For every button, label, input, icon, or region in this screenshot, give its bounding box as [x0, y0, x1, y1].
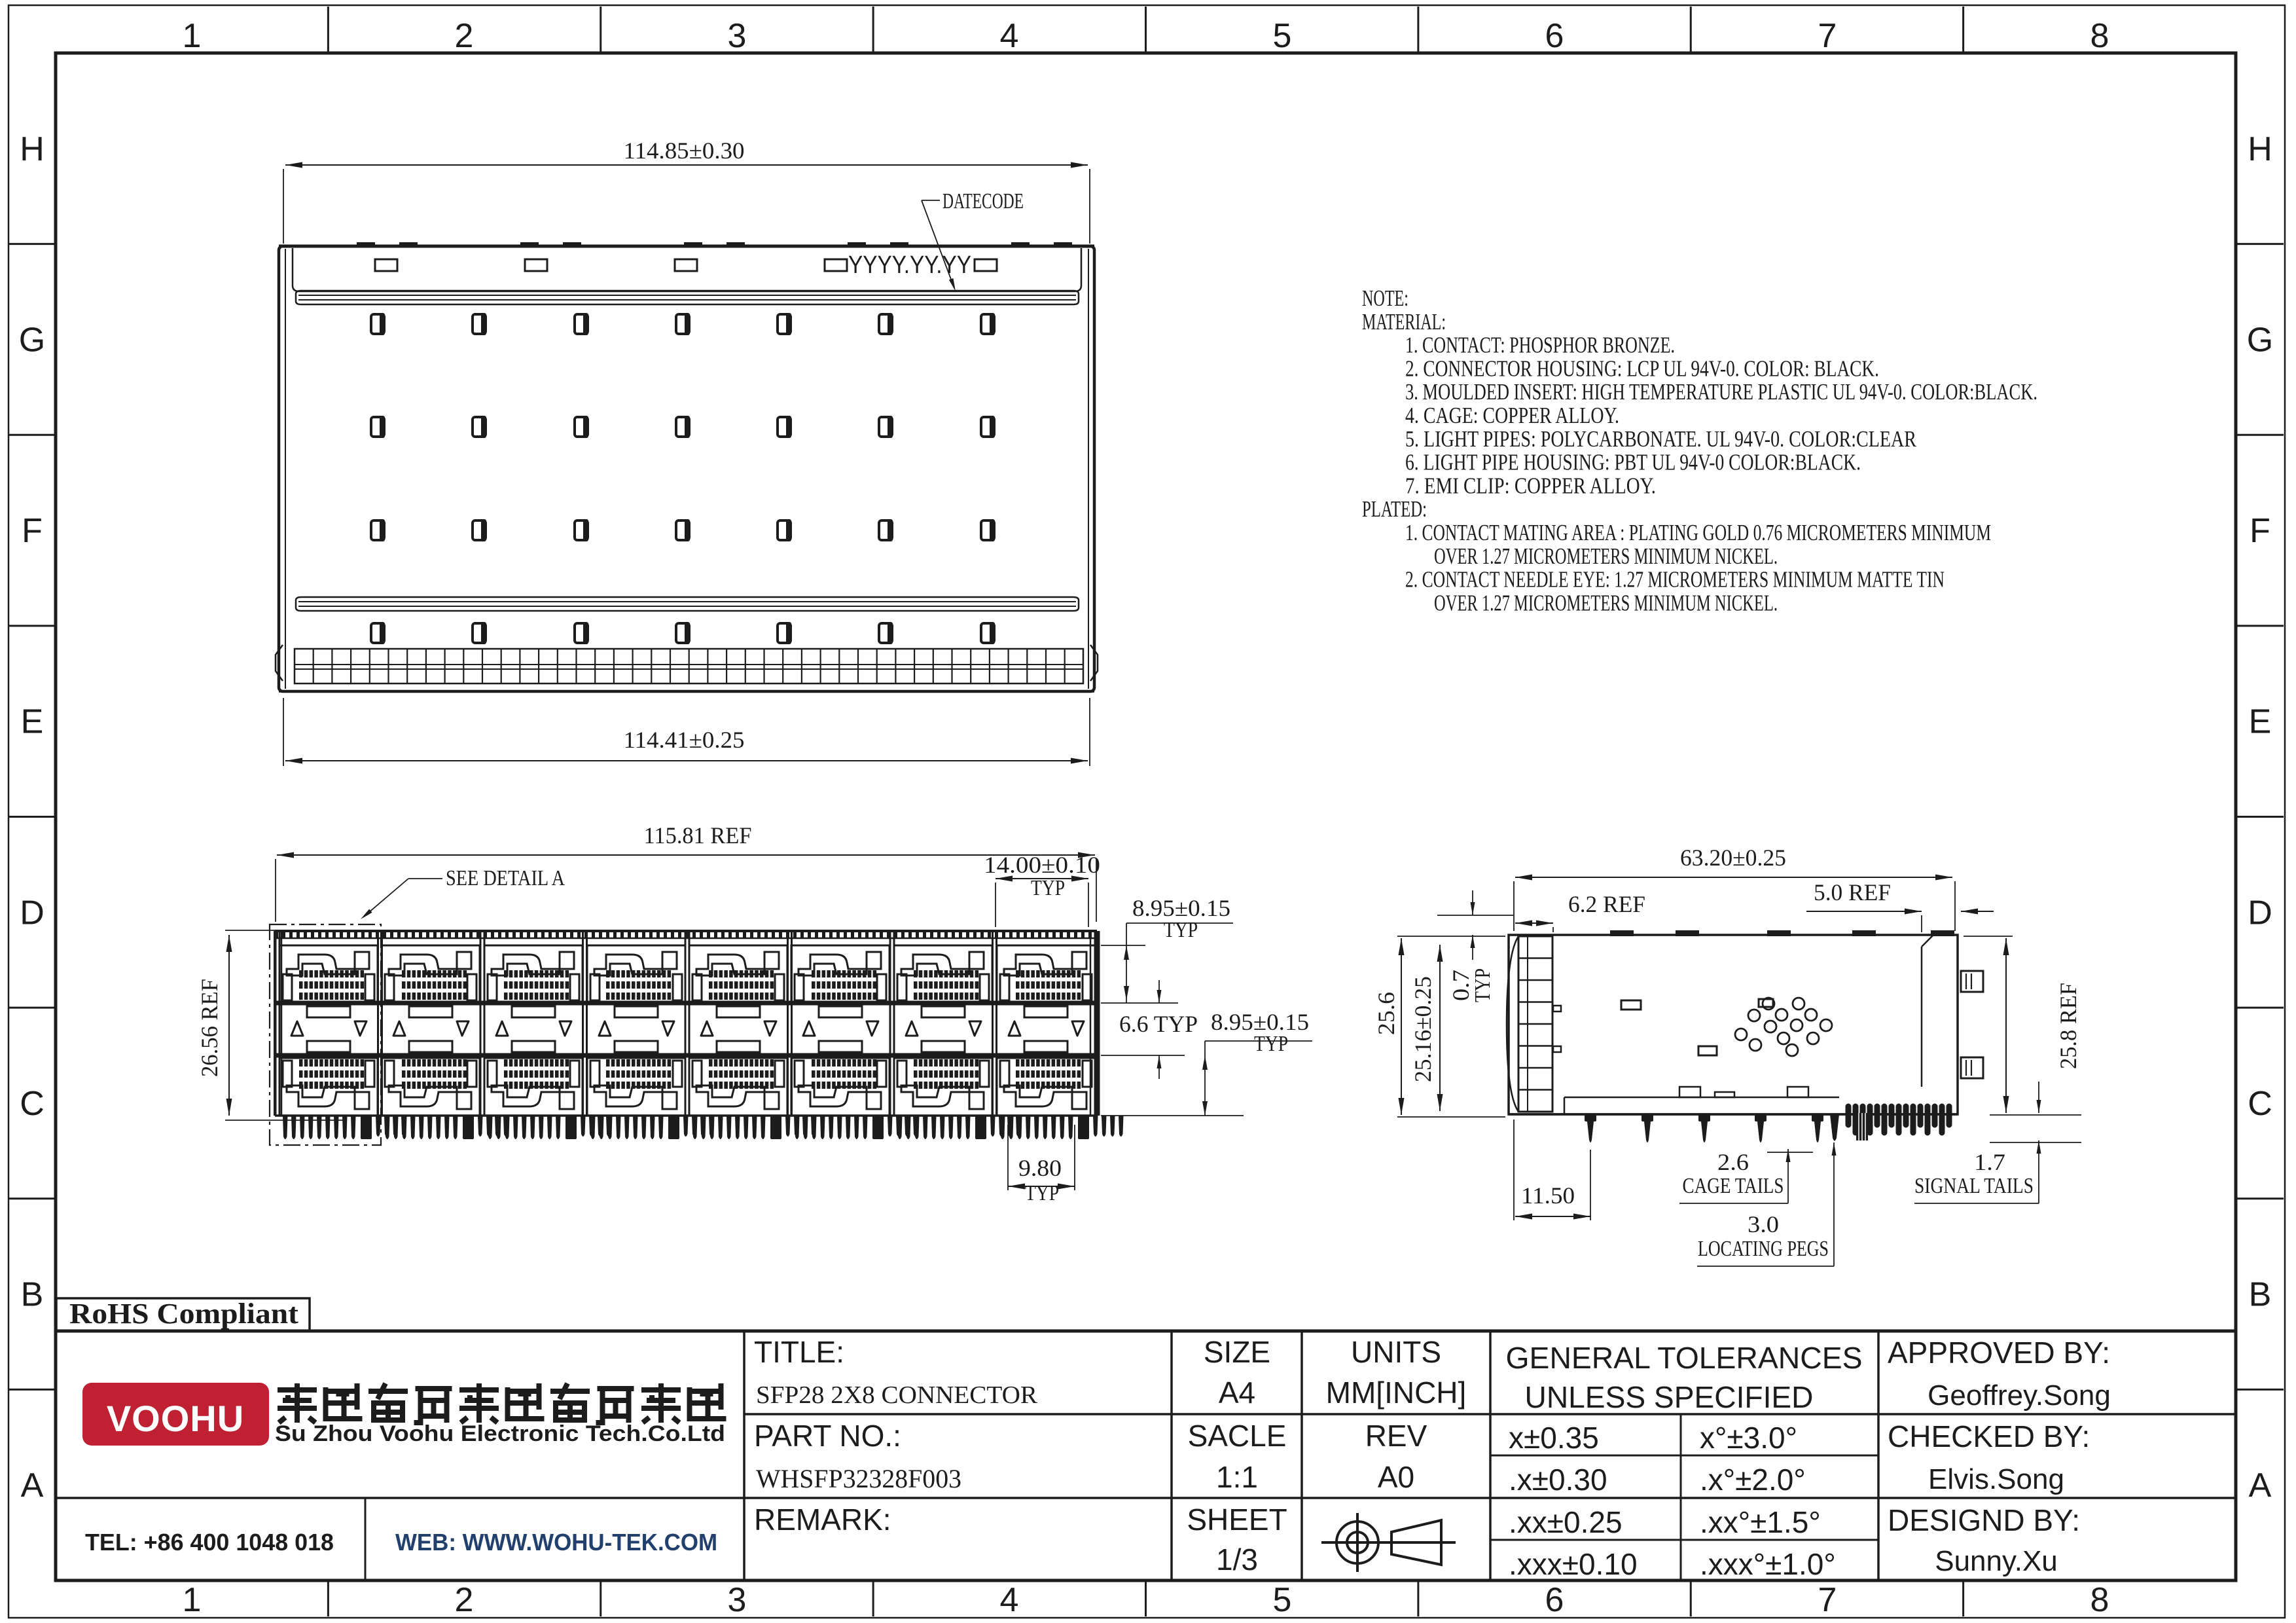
- svg-text:TEL: +86 400 1048 018: TEL: +86 400 1048 018: [85, 1529, 334, 1556]
- svg-text:6. LIGHT PIPE HOUSING: PBT UL: 6. LIGHT PIPE HOUSING: PBT UL 94V-0 COLO…: [1405, 450, 1861, 475]
- svg-text:0.7: 0.7: [1448, 970, 1474, 1001]
- svg-text:Elvis.Song: Elvis.Song: [1928, 1463, 2064, 1495]
- svg-text:SFP28 2X8 CONNECTOR: SFP28 2X8 CONNECTOR: [756, 1381, 1038, 1409]
- svg-text:CHECKED BY:: CHECKED BY:: [1888, 1419, 2090, 1453]
- svg-text:TYP: TYP: [1254, 1032, 1288, 1056]
- svg-text:VOOHU: VOOHU: [107, 1398, 244, 1439]
- svg-text:RoHS Compliant: RoHS Compliant: [69, 1298, 298, 1330]
- svg-text:2: 2: [455, 1581, 474, 1619]
- svg-text:D: D: [2248, 894, 2272, 932]
- svg-text:11.50: 11.50: [1521, 1182, 1575, 1209]
- svg-text:6: 6: [1545, 1581, 1564, 1619]
- svg-text:26.56 REF: 26.56 REF: [196, 979, 223, 1077]
- svg-text:25.16±0.25: 25.16±0.25: [1410, 976, 1436, 1082]
- svg-text:SIGNAL TAILS: SIGNAL TAILS: [1914, 1174, 2034, 1198]
- svg-text:TYP: TYP: [1471, 968, 1495, 1002]
- svg-text:TYP: TYP: [1164, 918, 1198, 942]
- svg-text:GENERAL TOLERANCES: GENERAL TOLERANCES: [1506, 1341, 1863, 1375]
- svg-text:3: 3: [728, 1581, 747, 1619]
- svg-text:7: 7: [1818, 1581, 1837, 1619]
- svg-text:114.85±0.30: 114.85±0.30: [624, 137, 745, 164]
- svg-text:G: G: [19, 321, 45, 359]
- svg-text:Geoffrey.Song: Geoffrey.Song: [1928, 1379, 2111, 1412]
- svg-text:6: 6: [1545, 17, 1564, 55]
- svg-text:4. CAGE: COPPER ALLOY.: 4. CAGE: COPPER ALLOY.: [1405, 403, 1619, 428]
- svg-text:C: C: [2248, 1085, 2272, 1123]
- svg-text:1:1: 1:1: [1216, 1460, 1258, 1494]
- svg-text:UNLESS SPECIFIED: UNLESS SPECIFIED: [1525, 1380, 1814, 1414]
- svg-text:8.95±0.15: 8.95±0.15: [1132, 895, 1230, 921]
- svg-text:WEB: WWW.WOHU-TEK.COM: WEB: WWW.WOHU-TEK.COM: [395, 1529, 717, 1556]
- svg-text:PLATED:: PLATED:: [1362, 496, 1427, 522]
- svg-text:C: C: [20, 1085, 45, 1123]
- svg-text:63.20±0.25: 63.20±0.25: [1680, 845, 1786, 871]
- svg-text:SACLE: SACLE: [1188, 1419, 1287, 1453]
- svg-text:6.6 TYP: 6.6 TYP: [1119, 1011, 1198, 1037]
- svg-text:DATECODE: DATECODE: [942, 189, 1024, 213]
- svg-text:OVER 1.27 MICROMETERS MINIMUM: OVER 1.27 MICROMETERS MINIMUM NICKEL.: [1434, 590, 1778, 615]
- svg-text:1.7: 1.7: [1974, 1149, 2005, 1175]
- svg-text:7. EMI CLIP: COPPER ALLOY.: 7. EMI CLIP: COPPER ALLOY.: [1405, 473, 1656, 498]
- svg-text:2. CONNECTOR HOUSING: LCP UL: 2. CONNECTOR HOUSING: LCP UL 94V-0. COLO…: [1405, 356, 1879, 381]
- svg-text:9.80: 9.80: [1018, 1155, 1062, 1181]
- svg-text:MM[INCH]: MM[INCH]: [1326, 1376, 1467, 1410]
- svg-text:.x°±2.0°: .x°±2.0°: [1700, 1463, 1806, 1497]
- svg-text:MATERIAL:: MATERIAL:: [1362, 309, 1446, 335]
- svg-text:4: 4: [1000, 17, 1019, 55]
- svg-text:.xxx±0.10: .xxx±0.10: [1509, 1547, 1638, 1581]
- svg-text:LOCATING PEGS: LOCATING PEGS: [1698, 1237, 1829, 1261]
- svg-text:Su Zhou Voohu Electronic Tech.: Su Zhou Voohu Electronic Tech.Co.Ltd: [275, 1421, 725, 1446]
- svg-text:CAGE TAILS: CAGE TAILS: [1683, 1174, 1784, 1198]
- svg-text:SIZE: SIZE: [1204, 1335, 1270, 1369]
- svg-text:WHSFP32328F003: WHSFP32328F003: [756, 1464, 961, 1493]
- svg-text:6.2 REF: 6.2 REF: [1568, 891, 1645, 917]
- svg-text:5.0 REF: 5.0 REF: [1814, 879, 1891, 905]
- svg-text:4: 4: [1000, 1581, 1019, 1619]
- svg-text:8: 8: [2090, 1581, 2109, 1619]
- svg-text:Sunny.Xu: Sunny.Xu: [1935, 1545, 2058, 1577]
- svg-text:TYP: TYP: [1031, 876, 1065, 900]
- svg-text:REV: REV: [1365, 1419, 1427, 1453]
- svg-text:1/3: 1/3: [1216, 1542, 1258, 1577]
- svg-text:A: A: [2249, 1467, 2272, 1504]
- svg-text:D: D: [20, 894, 45, 932]
- svg-text:A: A: [21, 1467, 44, 1504]
- svg-text:1: 1: [183, 1581, 202, 1619]
- svg-text:1. CONTACT MATING AREA : PLAT: 1. CONTACT MATING AREA : PLATING GOLD 0.…: [1405, 520, 1991, 545]
- svg-text:F: F: [2250, 512, 2270, 550]
- svg-text:x±0.35: x±0.35: [1509, 1421, 1599, 1455]
- svg-text:B: B: [21, 1276, 44, 1314]
- svg-text:.x±0.30: .x±0.30: [1509, 1463, 1607, 1497]
- svg-text:B: B: [2249, 1276, 2272, 1314]
- svg-text:2: 2: [455, 17, 474, 55]
- svg-text:.xx±0.25: .xx±0.25: [1509, 1505, 1623, 1539]
- svg-text:1. CONTACT: PHOSPHOR BRONZE.: 1. CONTACT: PHOSPHOR BRONZE.: [1405, 333, 1675, 358]
- svg-text:F: F: [22, 512, 43, 550]
- svg-text:14.00±0.10: 14.00±0.10: [984, 852, 1100, 878]
- svg-text:E: E: [21, 703, 44, 741]
- svg-text:E: E: [2249, 703, 2272, 741]
- svg-text:REMARK:: REMARK:: [754, 1503, 891, 1537]
- svg-text:115.81 REF: 115.81 REF: [644, 822, 752, 848]
- svg-text:5. LIGHT PIPES: POLYCARBONATE: 5. LIGHT PIPES: POLYCARBONATE. UL 94V-0.…: [1405, 426, 1917, 452]
- svg-text:UNITS: UNITS: [1351, 1335, 1441, 1369]
- svg-text:SHEET: SHEET: [1187, 1503, 1287, 1537]
- svg-text:OVER 1.27 MICROMETERS MINIMUM: OVER 1.27 MICROMETERS MINIMUM NICKEL.: [1434, 543, 1778, 569]
- svg-text:APPROVED BY:: APPROVED BY:: [1888, 1336, 2110, 1370]
- svg-text:SEE DETAIL A: SEE DETAIL A: [446, 866, 565, 890]
- svg-text:5: 5: [1273, 17, 1292, 55]
- svg-text:DESIGND BY:: DESIGND BY:: [1888, 1503, 2080, 1537]
- svg-text:.xx°±1.5°: .xx°±1.5°: [1700, 1505, 1821, 1539]
- svg-text:3.0: 3.0: [1748, 1211, 1779, 1237]
- svg-text:7: 7: [1818, 17, 1837, 55]
- svg-text:x°±3.0°: x°±3.0°: [1700, 1421, 1797, 1455]
- svg-text:8: 8: [2090, 17, 2109, 55]
- svg-text:H: H: [20, 130, 45, 168]
- svg-text:114.41±0.25: 114.41±0.25: [624, 727, 745, 753]
- svg-text:.xxx°±1.0°: .xxx°±1.0°: [1700, 1547, 1836, 1581]
- svg-text:5: 5: [1273, 1581, 1292, 1619]
- svg-text:2. CONTACT NEEDLE EYE: 1.27 M: 2. CONTACT NEEDLE EYE: 1.27 MICROMETERS …: [1405, 567, 1945, 593]
- svg-text:25.6: 25.6: [1373, 992, 1399, 1035]
- svg-text:3: 3: [728, 17, 747, 55]
- svg-text:1: 1: [183, 17, 202, 55]
- svg-text:A0: A0: [1378, 1460, 1414, 1494]
- svg-text:2.6: 2.6: [1717, 1149, 1749, 1175]
- svg-text:YYYY.YY.YY: YYYY.YY.YY: [848, 251, 971, 279]
- svg-text:H: H: [2248, 130, 2272, 168]
- svg-text:8.95±0.15: 8.95±0.15: [1211, 1009, 1309, 1035]
- svg-text:A4: A4: [1219, 1376, 1255, 1410]
- svg-text:25.8 REF: 25.8 REF: [2055, 983, 2081, 1069]
- svg-text:TYP: TYP: [1025, 1181, 1059, 1205]
- svg-text:G: G: [2247, 321, 2273, 359]
- svg-text:3. MOULDED INSERT: HIGH TEMPE: 3. MOULDED INSERT: HIGH TEMPERATURE PLAS…: [1405, 379, 2037, 405]
- svg-text:NOTE:: NOTE:: [1362, 285, 1408, 311]
- svg-text:TITLE:: TITLE:: [754, 1335, 844, 1369]
- svg-text:PART NO.:: PART NO.:: [754, 1419, 901, 1453]
